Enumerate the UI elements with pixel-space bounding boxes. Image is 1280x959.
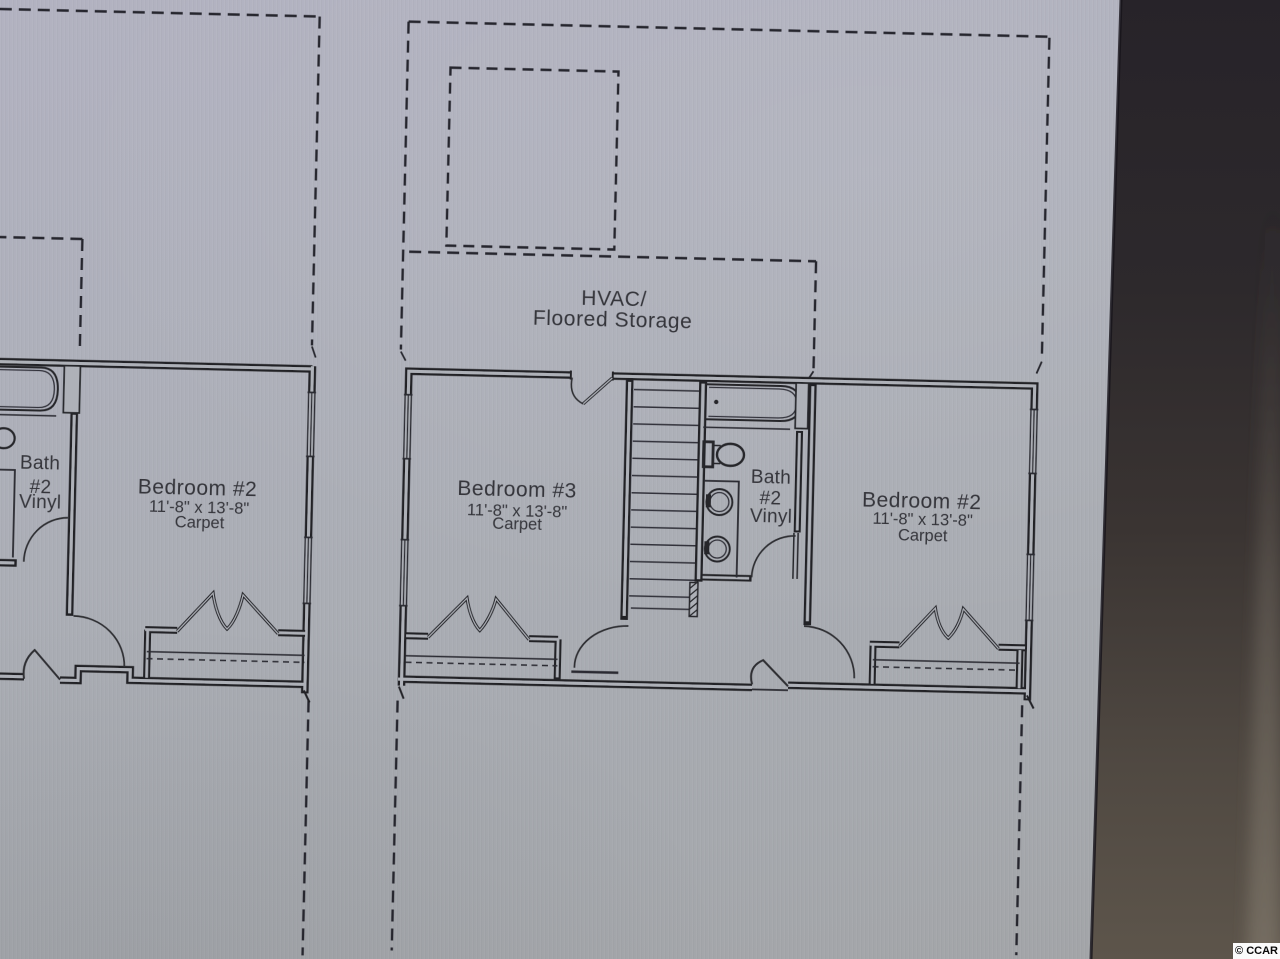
- svg-text:Vinyl: Vinyl: [19, 492, 62, 514]
- svg-text:Bedroom #3: Bedroom #3: [457, 477, 577, 503]
- svg-text:Floored Storage: Floored Storage: [533, 307, 693, 334]
- svg-text:Carpet: Carpet: [898, 526, 948, 545]
- svg-text:Carpet: Carpet: [492, 515, 542, 534]
- svg-text:Bath: Bath: [20, 453, 61, 475]
- svg-text:Carpet: Carpet: [175, 513, 225, 532]
- svg-text:Vinyl: Vinyl: [750, 506, 793, 528]
- svg-text:Bath: Bath: [751, 467, 792, 489]
